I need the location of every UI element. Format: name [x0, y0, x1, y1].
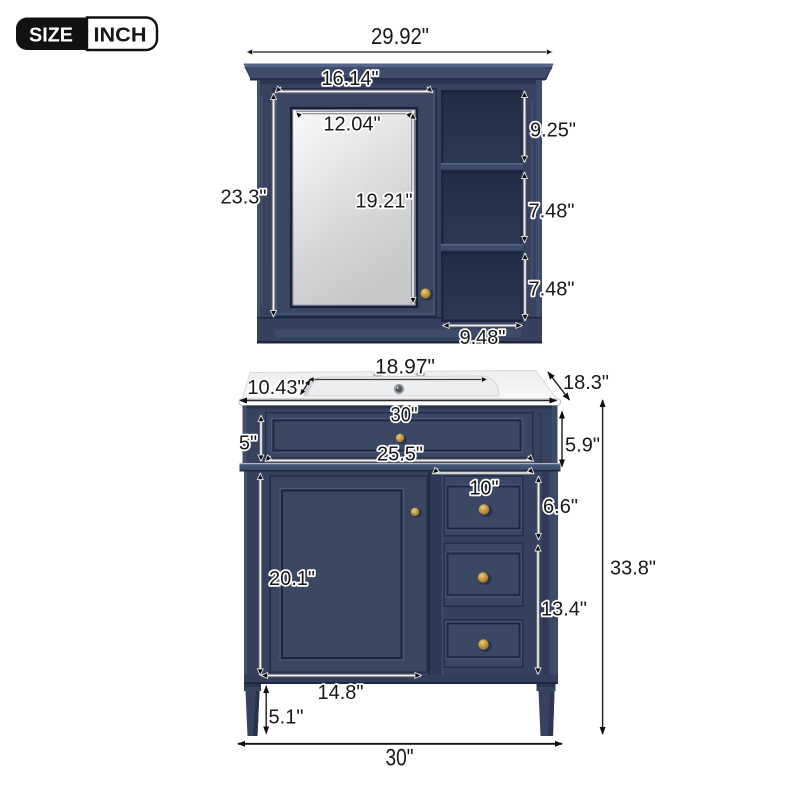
svg-text:10.43": 10.43" [247, 377, 304, 399]
svg-text:6.6": 6.6" [543, 496, 578, 518]
svg-text:9.48": 9.48" [459, 327, 505, 349]
svg-text:18.3": 18.3" [563, 372, 609, 394]
svg-text:29.92": 29.92" [371, 23, 429, 49]
svg-text:13.4": 13.4" [541, 599, 587, 621]
svg-text:25.5": 25.5" [377, 444, 423, 466]
svg-text:5": 5" [239, 433, 257, 455]
svg-text:10": 10" [469, 478, 498, 500]
svg-text:14.8": 14.8" [317, 682, 363, 704]
svg-text:20.1": 20.1" [269, 568, 315, 590]
svg-text:19.21": 19.21" [355, 191, 412, 213]
svg-text:18.97": 18.97" [375, 356, 435, 379]
svg-text:30": 30" [386, 745, 414, 772]
svg-text:16.14": 16.14" [321, 68, 378, 90]
svg-text:5.1": 5.1" [269, 707, 304, 729]
svg-text:5.9": 5.9" [565, 435, 600, 457]
svg-text:12.04": 12.04" [323, 114, 380, 136]
svg-text:30": 30" [391, 404, 418, 427]
svg-text:SIZE: SIZE [29, 24, 73, 47]
svg-text:7.48": 7.48" [528, 201, 574, 223]
svg-text:23.3": 23.3" [220, 187, 266, 209]
svg-text:7.48": 7.48" [528, 279, 574, 301]
svg-text:INCH: INCH [94, 24, 147, 47]
svg-text:9.25": 9.25" [530, 120, 576, 142]
svg-text:33.8": 33.8" [610, 558, 656, 580]
